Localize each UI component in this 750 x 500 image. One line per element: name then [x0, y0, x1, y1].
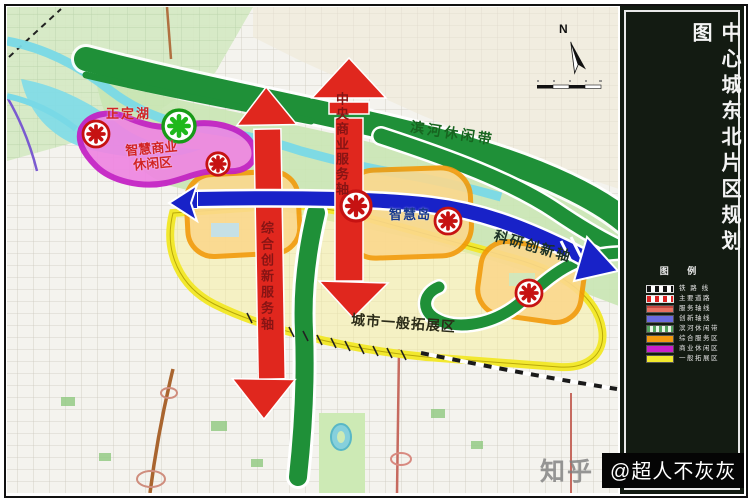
- legend-label: 滨河休闲带: [679, 325, 719, 332]
- legend-row-expansion-area: 一般拓展区: [646, 355, 744, 362]
- legend-swatch-yellow: [646, 355, 674, 363]
- node-marker-red: [83, 121, 109, 147]
- node-marker-red: [207, 153, 229, 175]
- legend-title: 图 例: [620, 264, 744, 277]
- legend-label: 主要道路: [679, 295, 711, 302]
- legend-row-innovation-axis: 创新轴线: [646, 315, 744, 322]
- legend-row-railway: 铁 路 线: [646, 285, 744, 292]
- node-marker-red: [516, 280, 542, 306]
- legend-swatch-red: [646, 305, 674, 313]
- legend-label: 商业休闲区: [679, 345, 719, 352]
- legend: 图 例 铁 路 线 主要道路 服务轴线 创新轴线 滨河休闲带 综合服务区 商业休…: [620, 264, 744, 365]
- legend-swatch-railway: [646, 285, 674, 293]
- node-marker-red: [435, 208, 461, 234]
- node-marker-red: [341, 191, 371, 221]
- legend-row-service-area: 综合服务区: [646, 335, 744, 342]
- legend-label: 一般拓展区: [679, 355, 719, 362]
- node-marker-green: [163, 110, 195, 142]
- legend-swatch-magenta: [646, 345, 674, 353]
- legend-swatch-road: [646, 295, 674, 303]
- planning-map-page: 正定湖 智慧商业 休闲区 滨河休闲带 中央商业服务轴 综合创新服务轴 智慧岛 科…: [0, 0, 750, 500]
- map-area: [7, 7, 618, 493]
- title-panel: 中心城东北片区规划图 图 例 铁 路 线 主要道路 服务轴线 创新轴线 滨河休闲…: [620, 6, 744, 494]
- legend-row-road: 主要道路: [646, 295, 744, 302]
- legend-row-service-axis: 服务轴线: [646, 305, 744, 312]
- legend-swatch-orange: [646, 335, 674, 343]
- watermark: 知乎 @超人不灰灰: [540, 452, 744, 488]
- legend-label: 综合服务区: [679, 335, 719, 342]
- legend-row-leisure-area: 商业休闲区: [646, 345, 744, 352]
- legend-row-riverside-belt: 滨河休闲带: [646, 325, 744, 332]
- map-canvas: [7, 7, 618, 493]
- legend-swatch-blue: [646, 315, 674, 323]
- legend-label: 铁 路 线: [679, 285, 710, 292]
- legend-label: 创新轴线: [679, 315, 711, 322]
- legend-swatch-green: [646, 325, 674, 333]
- legend-label: 服务轴线: [679, 305, 711, 312]
- watermark-author: @超人不灰灰: [602, 453, 744, 488]
- watermark-brand: 知乎: [540, 452, 594, 488]
- map-title: 中心城东北片区规划图: [620, 22, 744, 267]
